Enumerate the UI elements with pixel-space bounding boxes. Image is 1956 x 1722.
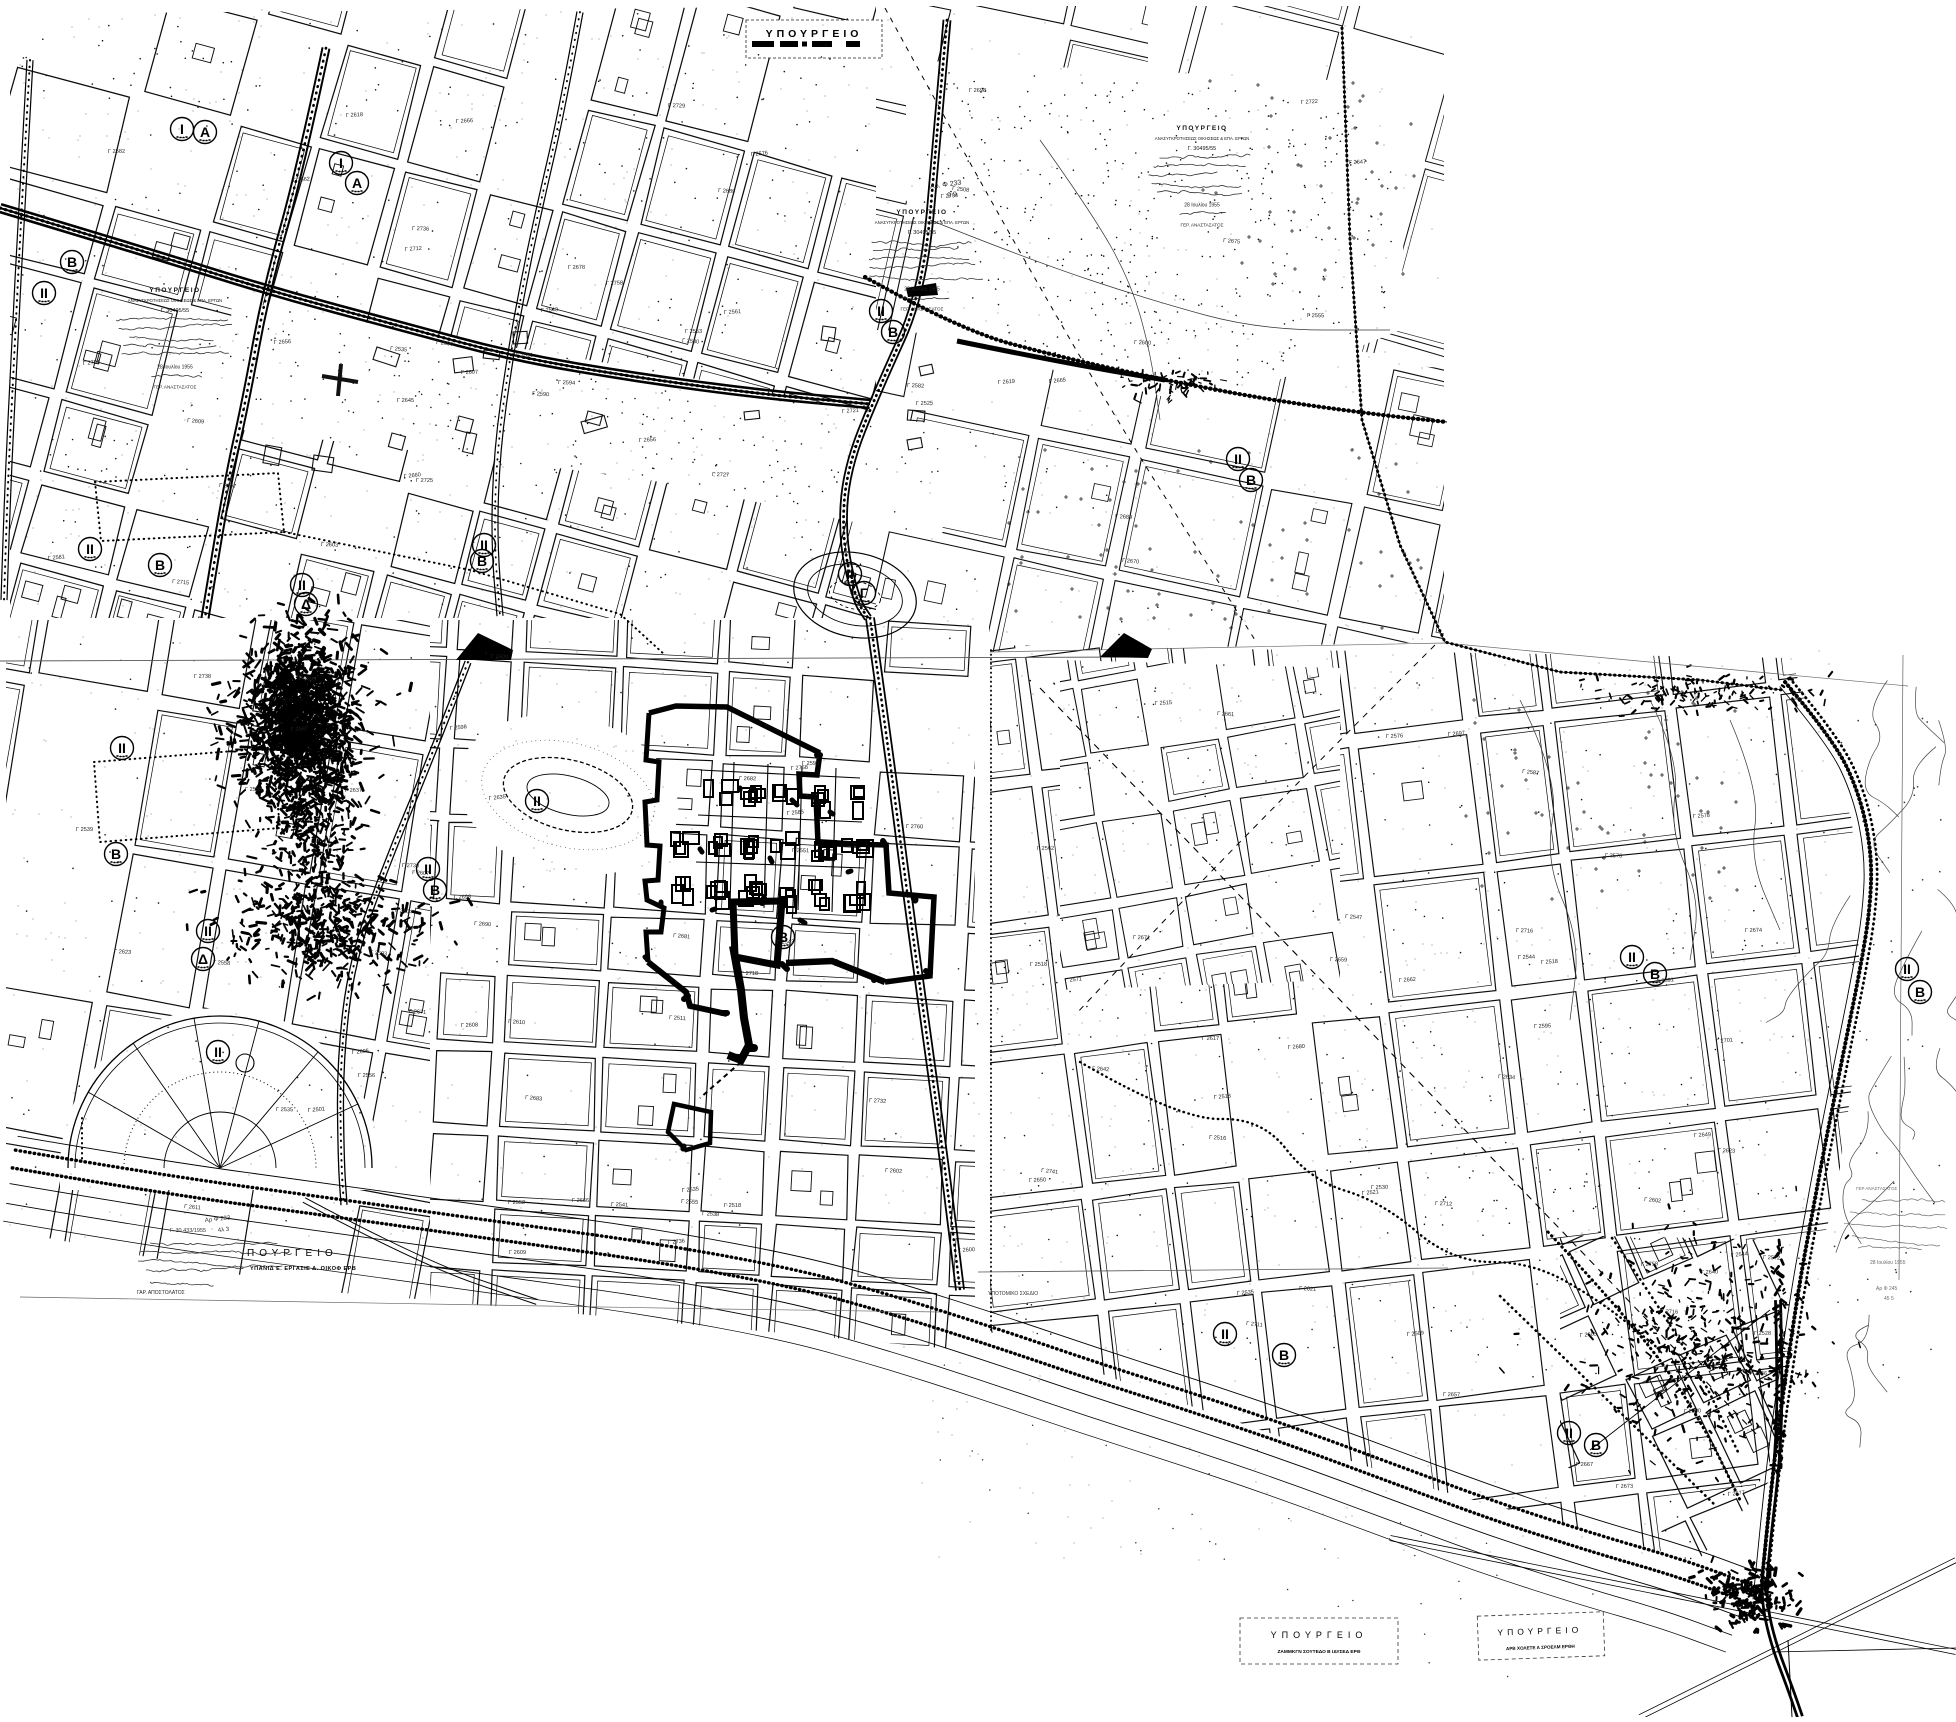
svg-text:Γ 2518: Γ 2518 — [1541, 959, 1558, 966]
svg-text:Γ 2600: Γ 2600 — [1134, 340, 1151, 347]
svg-text:Γ 2608: Γ 2608 — [461, 1022, 478, 1029]
svg-text:Γ 2712: Γ 2712 — [405, 246, 422, 253]
svg-text:Γ 2530: Γ 2530 — [1371, 1185, 1388, 1191]
svg-text:II: II — [533, 793, 541, 809]
svg-text:Γ 2736: Γ 2736 — [412, 226, 429, 233]
svg-text:ΓΕΡ. ΑΝΑΣΤΑΣΑΤΟΣ: ΓΕΡ. ΑΝΑΣΤΑΣΑΤΟΣ — [901, 307, 944, 312]
svg-text:ΓΑΡ. ΑΠΟΣΤΟΛΑΤΟΣ: ΓΑΡ. ΑΠΟΣΤΟΛΑΤΟΣ — [137, 1290, 185, 1296]
svg-text:ΥΠΟΥΡΓΕΙΟ: ΥΠΟΥΡΓΕΙΟ — [1176, 125, 1227, 132]
svg-text:Γ. 30495/55: Γ. 30495/55 — [1188, 146, 1216, 152]
svg-text:A: A — [352, 175, 362, 191]
svg-text:Γ 2618: Γ 2618 — [346, 112, 363, 119]
svg-text:Γ 2671: Γ 2671 — [1133, 935, 1150, 941]
svg-text:Γ 2673: Γ 2673 — [1616, 1484, 1633, 1490]
svg-text:Γ 2621: Γ 2621 — [1299, 1286, 1316, 1293]
svg-text:Γ 2666: Γ 2666 — [572, 1198, 589, 1204]
svg-text:Γ 2538: Γ 2538 — [702, 1211, 719, 1218]
svg-text:Γ 2754: Γ 2754 — [941, 193, 958, 200]
svg-text:Γ 2603: Γ 2603 — [321, 542, 338, 549]
svg-text:Γ 2562: Γ 2562 — [1037, 846, 1054, 852]
svg-text:Γ: Γ — [860, 585, 869, 601]
svg-text:B: B — [888, 324, 898, 340]
svg-text:Γ 2619: Γ 2619 — [998, 379, 1015, 386]
svg-text:Γ 2698: Γ 2698 — [969, 88, 986, 94]
svg-text:B: B — [67, 254, 77, 270]
svg-text:Γ 2610: Γ 2610 — [508, 1019, 525, 1026]
svg-text:ΓΕΡ. ΑΝΑΣΤΑΣΑΤΟΣ: ΓΕΡ. ΑΝΑΣΤΑΣΑΤΟΣ — [1181, 223, 1224, 228]
svg-text:Γ 2689: Γ 2689 — [1115, 514, 1132, 521]
svg-text:Γ 2712: Γ 2712 — [1435, 1201, 1452, 1208]
svg-text:ΑΝΑΣΥΓΚΡΟΤΗΣΕΩΣ ΟΙΚΗΣΕΩΣ & ΕΠΑ: ΑΝΑΣΥΓΚΡΟΤΗΣΕΩΣ ΟΙΚΗΣΕΩΣ & ΕΠΑ. ΕΡΓΩΝ — [875, 220, 969, 225]
svg-text:Γ 2555: Γ 2555 — [245, 787, 262, 793]
svg-text:B: B — [1246, 472, 1256, 488]
svg-text:II: II — [214, 1044, 222, 1060]
svg-text:Γ 2697: Γ 2697 — [219, 483, 236, 490]
svg-text:Γ 2634: Γ 2634 — [1498, 1074, 1515, 1081]
svg-text:II: II — [1221, 1326, 1229, 1342]
svg-text:Γ 2690: Γ 2690 — [474, 921, 491, 928]
svg-text:Γ. 30495/55: Γ. 30495/55 — [908, 230, 936, 236]
svg-text:II: II — [877, 303, 885, 319]
svg-text:ΓΕΡ. ΑΝΑΣΤΑΣΑΤΟΣ: ΓΕΡ. ΑΝΑΣΤΑΣΑΤΟΣ — [154, 385, 197, 390]
svg-text:ΖΑΜΜΚΓΝ ΣΟΥΤΕΔΟ Β ΙΔΥΣΕΔ Ε: ΖΑΜΜΚΓΝ ΣΟΥΤΕΔΟ Β ΙΔΥΣΕΔ ΕΡΘ — [1277, 1649, 1360, 1655]
svg-text:Γ 2716: Γ 2716 — [1661, 1309, 1678, 1316]
svg-text:ΑΝΑΣΥΓΚΡΟΤΗΣΕΩΣ ΟΙΚΗΣΕΩΣ & ΕΠΑ: ΑΝΑΣΥΓΚΡΟΤΗΣΕΩΣ ΟΙΚΗΣΕΩΣ & ΕΠΑ. ΕΡΓΩΝ — [1155, 136, 1249, 141]
svg-text:Γ 2525: Γ 2525 — [916, 401, 933, 407]
svg-text:Γ 2650: Γ 2650 — [1029, 1177, 1046, 1184]
svg-text:Γ. 30495/55: Γ. 30495/55 — [161, 308, 189, 314]
svg-text:Γ. 30 433/1955: Γ. 30 433/1955 — [170, 1228, 206, 1234]
svg-text:Γ 2518: Γ 2518 — [724, 1203, 741, 1209]
svg-text:Γ 2698: Γ 2698 — [454, 894, 471, 901]
svg-text:Γ 2682: Γ 2682 — [739, 776, 756, 782]
svg-text:Γ 2587: Γ 2587 — [291, 726, 308, 733]
svg-text:Γ 2666: Γ 2666 — [456, 118, 473, 125]
svg-text:Γ 2623: Γ 2623 — [1718, 1148, 1735, 1155]
svg-text:Γ 2738: Γ 2738 — [194, 674, 211, 680]
svg-text:Γ 2725: Γ 2725 — [416, 478, 433, 484]
svg-text:45 5: 45 5 — [1884, 1296, 1894, 1302]
svg-text:Γ 2689: Γ 2689 — [718, 188, 735, 195]
svg-text:Γ 2722: Γ 2722 — [1301, 99, 1318, 106]
svg-text:II: II — [846, 566, 854, 582]
svg-text:Γ 2661: Γ 2661 — [1217, 711, 1234, 718]
svg-text:Γ 2511: Γ 2511 — [669, 1015, 686, 1022]
svg-text:II: II — [40, 285, 48, 301]
svg-text:Γ 2558: Γ 2558 — [213, 960, 230, 967]
svg-text:ΥΠΟΥΡΓΕΙΟ: ΥΠΟΥΡΓΕΙΟ — [896, 209, 947, 216]
svg-text:Γ 2678: Γ 2678 — [568, 265, 585, 271]
svg-text:Γ 2528: Γ 2528 — [1754, 1331, 1771, 1337]
svg-text:Γ 2656: Γ 2656 — [639, 437, 656, 444]
svg-text:Γ 2582: Γ 2582 — [907, 383, 924, 390]
svg-text:Γ 2578: Γ 2578 — [1693, 813, 1710, 820]
svg-text:Γ 2656: Γ 2656 — [274, 339, 291, 346]
svg-text:Γ 2576: Γ 2576 — [1605, 853, 1622, 860]
svg-text:II: II — [86, 541, 94, 557]
svg-text:Γ 2561: Γ 2561 — [724, 309, 741, 316]
svg-text:Γ 2556: Γ 2556 — [358, 1073, 375, 1079]
svg-text:Γ 2551: Γ 2551 — [516, 353, 533, 359]
svg-text:I: I — [180, 121, 184, 137]
svg-text:B: B — [1915, 984, 1925, 1000]
svg-text:Γ 2729: Γ 2729 — [668, 103, 685, 110]
svg-text:Γ 2716: Γ 2716 — [1516, 928, 1533, 935]
svg-text:Γ 2659: Γ 2659 — [1330, 957, 1347, 964]
svg-text:Γ 2539: Γ 2539 — [76, 827, 93, 833]
svg-text:Γ 2609: Γ 2609 — [491, 654, 508, 661]
svg-text:Γ 2718: Γ 2718 — [741, 971, 758, 977]
svg-text:ΑΝΑΣΥΓΚΡΟΤΗΣΕΩΣ ΟΙΚΗΣΕΩΣ & ΕΠΑ: ΑΝΑΣΥΓΚΡΟΤΗΣΕΩΣ ΟΙΚΗΣΕΩΣ & ΕΠΑ. ΕΡΓΩΝ — [128, 298, 222, 303]
svg-text:II: II — [1903, 961, 1911, 977]
svg-text:Δ: Δ — [301, 596, 311, 612]
svg-text:Γ 2623: Γ 2623 — [114, 949, 131, 956]
svg-text:Γ 2555: Γ 2555 — [681, 1199, 698, 1206]
svg-text:ΥΠΟΥΡΓΕΙΟ: ΥΠΟΥΡΓΕΙΟ — [149, 287, 200, 294]
svg-text:Γ 2645: Γ 2645 — [397, 398, 414, 404]
svg-text:Δ: Δ — [198, 951, 208, 967]
svg-text:II: II — [204, 923, 212, 939]
svg-text:Γ 2547: Γ 2547 — [1345, 914, 1362, 921]
svg-text:II: II — [1565, 1425, 1573, 1441]
svg-text:Γ 2541: Γ 2541 — [611, 1202, 628, 1209]
svg-text:Γ 2721: Γ 2721 — [842, 408, 859, 415]
svg-text:Γ 2595: Γ 2595 — [1534, 1023, 1551, 1030]
svg-text:Γ 2543: Γ 2543 — [777, 939, 794, 946]
svg-text:Γ 2662: Γ 2662 — [1399, 977, 1416, 984]
svg-text:ΓΕΡ ΑΝΑΣΤΑΣΑΤΟΣ: ΓΕΡ ΑΝΑΣΤΑΣΑΤΟΣ — [1856, 1186, 1897, 1191]
svg-text:Γ 2758: Γ 2758 — [1641, 1261, 1658, 1268]
svg-text:28 Ιουλίου 1955: 28 Ιουλίου 1955 — [157, 365, 193, 371]
svg-text:Γ 2647: Γ 2647 — [1349, 159, 1366, 166]
svg-text:ΥΠΟΥΡΓΕΙΟ: ΥΠΟΥΡΓΕΙΟ — [766, 28, 863, 40]
svg-text:Γ 2516: Γ 2516 — [1209, 1135, 1226, 1142]
svg-text:Γ 2607: Γ 2607 — [461, 370, 478, 376]
svg-text:Γ 2671: Γ 2671 — [409, 1009, 426, 1016]
svg-text:B: B — [477, 553, 487, 569]
svg-text:Γ 2594: Γ 2594 — [558, 380, 575, 387]
svg-text:Γ 2582: Γ 2582 — [108, 149, 125, 155]
svg-text:Γ 2600: Γ 2600 — [958, 1247, 975, 1254]
svg-text:4λ 3: 4λ 3 — [218, 1227, 231, 1234]
svg-text:ΥΠΑΝΙΔ Ε. ΕΡΓΑΣΙΕ Δ. ΟΙΚΟΦ Ε: ΥΠΑΝΙΔ Ε. ΕΡΓΑΣΙΕ Δ. ΟΙΚΟΦ ΕΡΒ — [250, 1266, 356, 1272]
svg-text:Γ 2555: Γ 2555 — [1307, 313, 1324, 319]
svg-text:Γ 2576: Γ 2576 — [1386, 733, 1403, 740]
svg-text:Γ 2617: Γ 2617 — [1202, 1036, 1219, 1042]
svg-text:Γ 2544: Γ 2544 — [1518, 954, 1535, 961]
svg-text:Αρ Φ 245: Αρ Φ 245 — [1876, 1286, 1898, 1292]
svg-text:Γ 2727: Γ 2727 — [712, 472, 729, 479]
svg-text:Γ 2515: Γ 2515 — [1155, 700, 1172, 707]
svg-text:Γ 2518: Γ 2518 — [1030, 962, 1047, 968]
svg-text:Γ 2732: Γ 2732 — [869, 1098, 886, 1105]
svg-text:Γ 2680: Γ 2680 — [1288, 1044, 1305, 1051]
svg-text:Γ 2552: Γ 2552 — [508, 1200, 525, 1206]
svg-text:II: II — [298, 577, 306, 593]
svg-text:B: B — [155, 557, 165, 573]
svg-text:II: II — [118, 740, 126, 756]
svg-text:Γ 2637: Γ 2637 — [345, 788, 362, 794]
svg-text:II: II — [1628, 949, 1636, 965]
svg-text:Γ 2551: Γ 2551 — [792, 848, 809, 854]
svg-text:Γ 2535: Γ 2535 — [276, 1107, 293, 1113]
svg-text:Γ 2730: Γ 2730 — [402, 863, 419, 869]
svg-text:Γ 2640: Γ 2640 — [1701, 1269, 1718, 1276]
svg-text:Γ 2758: Γ 2758 — [791, 765, 808, 772]
svg-text:ΥΠΟΤΟΜΙΚΟ ΣΧΕΔΙΟ: ΥΠΟΤΟΜΙΚΟ ΣΧΕΔΙΟ — [988, 1291, 1038, 1297]
svg-text:Γ 2543: Γ 2543 — [541, 307, 558, 314]
svg-text:28 Ιουλίου 1955: 28 Ιουλίου 1955 — [1870, 1260, 1906, 1266]
svg-text:Γ 2602: Γ 2602 — [885, 1168, 902, 1175]
svg-text:B: B — [111, 846, 121, 862]
svg-text:Γ 2607: Γ 2607 — [412, 870, 429, 877]
svg-text:28 Ιουλίου 1955: 28 Ιουλίου 1955 — [904, 287, 940, 293]
svg-text:A: A — [200, 124, 210, 140]
svg-text:Γ 2760: Γ 2760 — [906, 824, 923, 830]
svg-text:Γ 2758: Γ 2758 — [606, 280, 623, 287]
svg-text:II: II — [1234, 451, 1242, 467]
svg-text:Γ 2657: Γ 2657 — [1443, 1392, 1460, 1398]
svg-text:28 Ιουλίου 1955: 28 Ιουλίου 1955 — [1184, 203, 1220, 209]
svg-text:I: I — [339, 155, 343, 171]
svg-text:ΥΠΟΥΡΓΕΙΟ: ΥΠΟΥΡΓΕΙΟ — [1271, 1630, 1368, 1640]
svg-text:ΠΟΥΡΓΕΙΟ: ΠΟΥΡΓΕΙΟ — [247, 1248, 338, 1259]
svg-text:Γ 2553: Γ 2553 — [685, 329, 702, 335]
svg-text:Γ 2590: Γ 2590 — [532, 391, 549, 398]
svg-text:Γ 2667: Γ 2667 — [1576, 1462, 1593, 1468]
svg-text:Γ 2674: Γ 2674 — [1745, 928, 1762, 934]
svg-text:Γ 2699: Γ 2699 — [299, 676, 316, 683]
svg-text:Γ 2609: Γ 2609 — [509, 1250, 526, 1256]
svg-text:Γ 2546: Γ 2546 — [1750, 1371, 1767, 1377]
svg-text:B: B — [1279, 1347, 1289, 1363]
svg-text:Γ 2649: Γ 2649 — [1694, 1132, 1711, 1139]
svg-text:B: B — [430, 882, 440, 898]
